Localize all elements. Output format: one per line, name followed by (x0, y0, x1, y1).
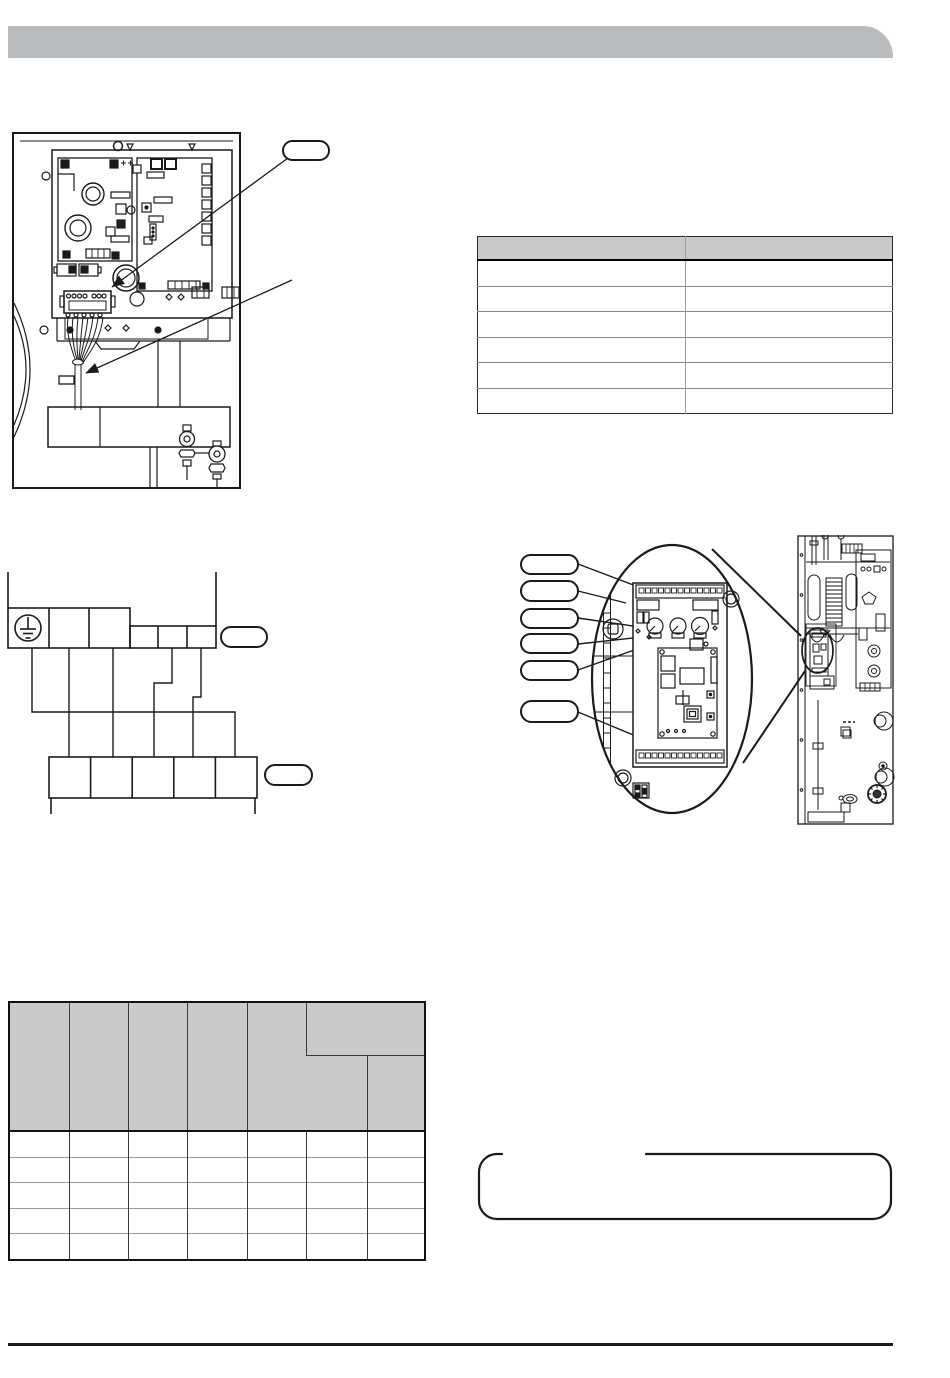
table-cell (128, 1208, 187, 1234)
table-cell (69, 1208, 128, 1234)
cabinet-diagram (8, 128, 353, 500)
table-cell (367, 1208, 425, 1234)
table-row (478, 388, 893, 414)
muffler (808, 575, 820, 620)
table-cell (247, 1157, 306, 1183)
table-cell (367, 1234, 425, 1260)
control-pcb (133, 158, 212, 291)
table-cell (478, 363, 686, 389)
table-cell (367, 1157, 425, 1183)
table-cell (247, 1234, 306, 1260)
grommet (603, 619, 623, 639)
cable-clamp (59, 376, 74, 384)
table-cell (247, 1208, 306, 1234)
table-cell (686, 388, 893, 414)
table-cell (478, 388, 686, 414)
table-cell (187, 1234, 247, 1260)
remote-terminal-strip (49, 757, 257, 814)
callout-ovals (521, 555, 578, 722)
main-pcb (633, 583, 727, 767)
connector-block (633, 783, 649, 798)
table-cell (9, 1131, 69, 1157)
terminal-block (60, 291, 115, 317)
wiring-diagram (0, 560, 335, 820)
table-cell (686, 312, 893, 338)
callout-oval (221, 627, 267, 647)
table-cell (686, 260, 893, 286)
table-cell (686, 337, 893, 363)
table-cell (69, 1131, 128, 1157)
pcb-location-diagram (505, 535, 900, 830)
spec-table (8, 1001, 426, 1261)
table-row (9, 1131, 425, 1157)
spec-header-cell-merged (306, 1002, 425, 1056)
table-cell (187, 1183, 247, 1209)
unit-terminal-strip (8, 608, 216, 648)
pump-knob (868, 785, 886, 803)
table-cell (187, 1131, 247, 1157)
table-cell (478, 337, 686, 363)
valve-2 (209, 441, 225, 487)
connection-table (477, 236, 893, 414)
table-cell (69, 1183, 128, 1209)
hydraulic-manifold (48, 407, 230, 488)
spec-subheader-cell (306, 1056, 367, 1132)
table-row (478, 363, 893, 389)
section-title (8, 26, 36, 40)
table-cell (9, 1183, 69, 1209)
table-cell (187, 1157, 247, 1183)
table-header-cell (686, 237, 893, 261)
fuse-holders (54, 264, 101, 276)
table-row (9, 1208, 425, 1234)
table-row (9, 1183, 425, 1209)
section-title-bar (8, 26, 893, 58)
indoor-unit-drawing (798, 535, 894, 824)
spec-header-cell (187, 1002, 247, 1131)
table-cell (367, 1183, 425, 1209)
table-cell (306, 1183, 367, 1209)
table-cell (686, 363, 893, 389)
table-cell (478, 312, 686, 338)
manual-page (0, 0, 950, 1378)
table-cell (128, 1131, 187, 1157)
table-cell (306, 1234, 367, 1260)
note-box-border (479, 1154, 891, 1219)
spec-header-cell (128, 1002, 187, 1131)
table-cell (306, 1208, 367, 1234)
spec-subheader-cell (367, 1056, 425, 1132)
table-cell (9, 1208, 69, 1234)
table-row (9, 1157, 425, 1183)
table-cell (306, 1131, 367, 1157)
table-cell (686, 286, 893, 312)
table-cell (247, 1183, 306, 1209)
table-header-cell (478, 237, 686, 261)
cable-clips (130, 287, 239, 306)
callout-oval (283, 141, 329, 160)
cabinet-outline (13, 133, 240, 488)
table-cell (247, 1131, 306, 1157)
leader-arrow-terminal (112, 158, 288, 287)
spec-header-cell (9, 1002, 69, 1131)
table-row (478, 337, 893, 363)
accumulator (846, 574, 857, 610)
table-cell (9, 1157, 69, 1183)
table-cell (128, 1157, 187, 1183)
table-cell (128, 1183, 187, 1209)
switch-box (856, 550, 891, 691)
table-cell (69, 1234, 128, 1260)
table-row (478, 260, 893, 286)
heat-exchanger (826, 578, 842, 626)
footer-rule (8, 1343, 893, 1346)
table-row (478, 312, 893, 338)
table-cell (367, 1131, 425, 1157)
spec-header-cell (69, 1002, 128, 1131)
table-header-row (478, 237, 893, 261)
interconnect-wires (32, 648, 235, 757)
table-cell (478, 260, 686, 286)
callout-oval (265, 765, 312, 785)
table-cell (478, 286, 686, 312)
table-cell (306, 1157, 367, 1183)
leader-arrow-cable (86, 280, 292, 373)
table-cell (187, 1208, 247, 1234)
note-box (470, 1145, 900, 1230)
valve-1 (179, 425, 209, 480)
spec-header-row-1 (9, 1002, 425, 1056)
spec-header-cell (247, 1002, 306, 1131)
table-row (478, 286, 893, 312)
table-cell (9, 1234, 69, 1260)
table-row (9, 1234, 425, 1260)
table-cell (69, 1157, 128, 1183)
table-cell (128, 1234, 187, 1260)
ground-symbol (15, 615, 41, 641)
electrical-panel (52, 150, 232, 318)
power-pcb (58, 158, 135, 261)
